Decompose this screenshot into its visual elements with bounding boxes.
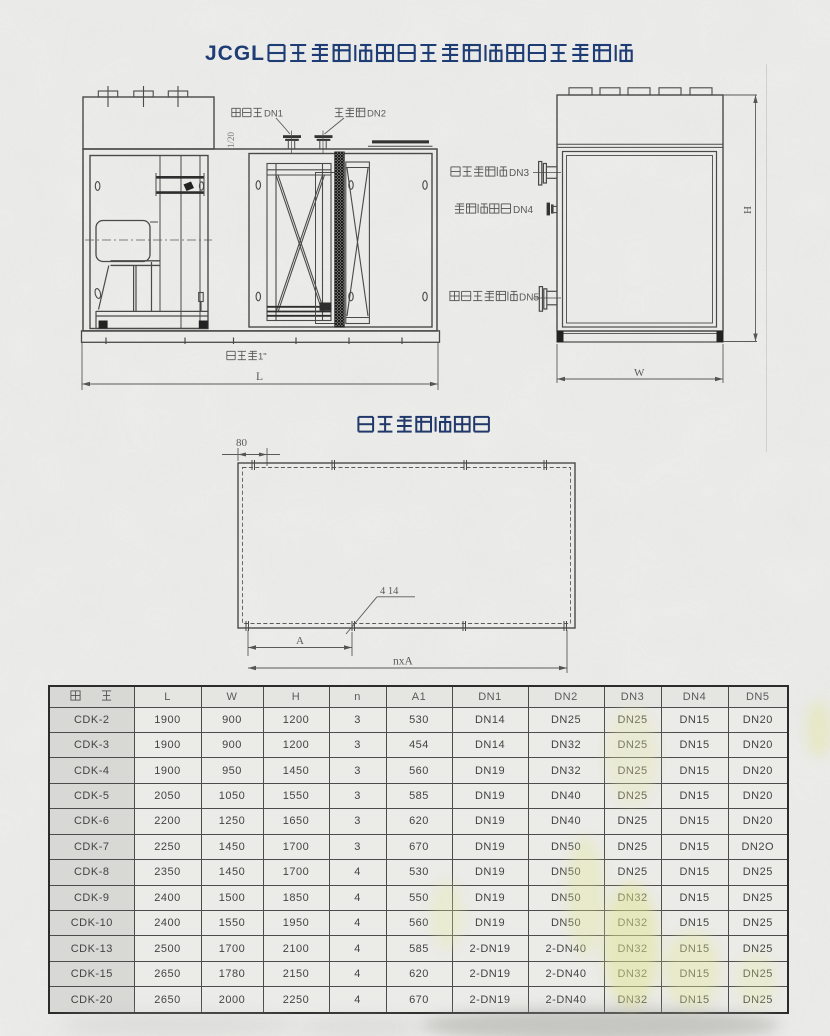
svg-text:DN3: DN3: [509, 168, 529, 179]
svg-text:1ʺ: 1ʺ: [258, 352, 267, 363]
svg-text:1/20: 1/20: [226, 131, 236, 148]
svg-text:nxA: nxA: [393, 656, 414, 668]
svg-text:DN2: DN2: [367, 109, 386, 120]
svg-text:80: 80: [236, 437, 248, 449]
svg-text:W: W: [634, 367, 645, 379]
svg-text:H: H: [742, 206, 754, 214]
svg-text:4 14: 4 14: [380, 586, 399, 597]
svg-text:DN1: DN1: [264, 109, 283, 120]
svg-text:A: A: [296, 635, 304, 647]
svg-text:DN4: DN4: [513, 205, 533, 216]
svg-text:L: L: [256, 371, 263, 383]
svg-text:DN5: DN5: [519, 293, 539, 304]
